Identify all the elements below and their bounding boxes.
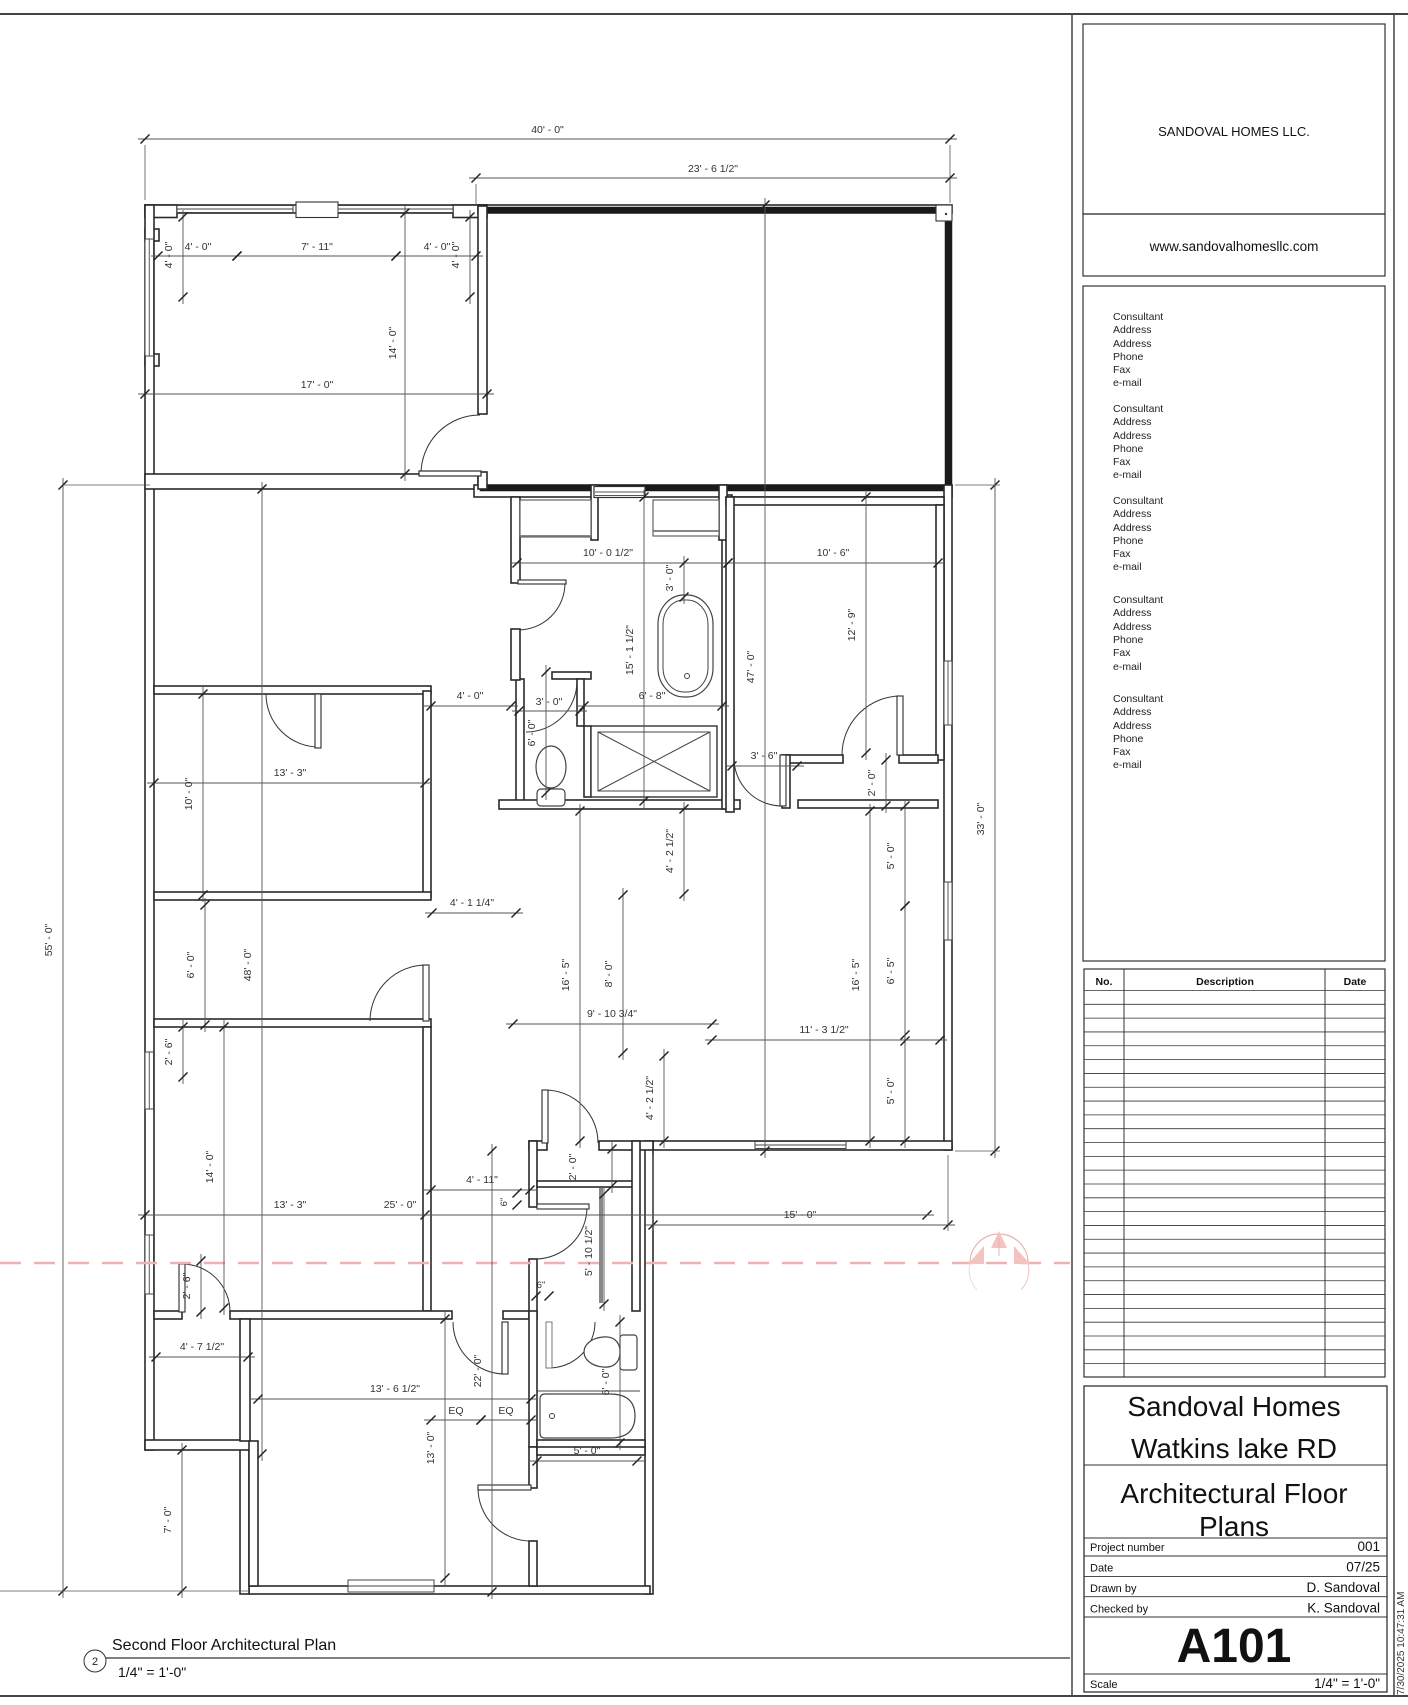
svg-text:Fax: Fax <box>1113 364 1131 376</box>
svg-text:2' - 0": 2' - 0" <box>866 769 878 796</box>
svg-text:SANDOVAL HOMES LLC.: SANDOVAL HOMES LLC. <box>1158 124 1310 139</box>
svg-text:11' - 3 1/2": 11' - 3 1/2" <box>799 1024 849 1036</box>
svg-text:Fax: Fax <box>1113 746 1131 758</box>
svg-text:Project number: Project number <box>1090 1542 1165 1554</box>
svg-text:2' - 6": 2' - 6" <box>163 1038 175 1065</box>
svg-text:13' - 6 1/2": 13' - 6 1/2" <box>370 1383 420 1395</box>
svg-text:Consultant: Consultant <box>1113 594 1163 606</box>
svg-text:4' - 0": 4' - 0" <box>424 241 451 253</box>
svg-text:23' - 6 1/2": 23' - 6 1/2" <box>688 163 738 175</box>
svg-text:Description: Description <box>1196 976 1254 988</box>
svg-text:2' - 6": 2' - 6" <box>181 1272 193 1299</box>
svg-text:Checked by: Checked by <box>1090 1604 1149 1616</box>
svg-text:Consultant: Consultant <box>1113 495 1163 507</box>
svg-text:6' - 0": 6' - 0" <box>600 1368 612 1395</box>
svg-text:4' - 0": 4' - 0" <box>163 241 175 268</box>
svg-text:Second Floor Architectural Pla: Second Floor Architectural Plan <box>112 1637 336 1654</box>
svg-text:4' - 7 1/2": 4' - 7 1/2" <box>180 1341 225 1353</box>
svg-text:14' - 0": 14' - 0" <box>204 1150 216 1183</box>
svg-text:4' - 11": 4' - 11" <box>466 1174 498 1186</box>
svg-text:14' - 0": 14' - 0" <box>387 326 399 359</box>
svg-text:Address: Address <box>1113 416 1152 428</box>
svg-text:Architectural Floor: Architectural Floor <box>1120 1478 1347 1509</box>
svg-text:e-mail: e-mail <box>1113 561 1142 573</box>
svg-text:Fax: Fax <box>1113 647 1131 659</box>
svg-text:e-mail: e-mail <box>1113 661 1142 673</box>
svg-text:Scale: Scale <box>1090 1679 1118 1691</box>
svg-text:4' - 0": 4' - 0" <box>457 690 484 702</box>
svg-text:7' - 11": 7' - 11" <box>301 241 333 253</box>
svg-text:Address: Address <box>1113 720 1152 732</box>
svg-text:Phone: Phone <box>1113 351 1144 363</box>
svg-text:Address: Address <box>1113 607 1152 619</box>
svg-text:33' - 0": 33' - 0" <box>975 802 987 835</box>
svg-text:6": 6" <box>499 1198 510 1207</box>
svg-text:1/4" = 1'-0": 1/4" = 1'-0" <box>1314 1676 1380 1691</box>
svg-text:3' - 6": 3' - 6" <box>751 750 778 762</box>
svg-text:2: 2 <box>92 1656 98 1668</box>
svg-text:3' - 0": 3' - 0" <box>664 564 676 591</box>
svg-text:Consultant: Consultant <box>1113 403 1163 415</box>
svg-text:Fax: Fax <box>1113 456 1131 468</box>
svg-text:6' - 5": 6' - 5" <box>885 957 897 984</box>
svg-text:6' - 0": 6' - 0" <box>526 719 538 746</box>
svg-text:Phone: Phone <box>1113 733 1144 745</box>
svg-text:15' - 0": 15' - 0" <box>784 1209 817 1221</box>
svg-text:Address: Address <box>1113 522 1152 534</box>
svg-text:9' - 10 3/4": 9' - 10 3/4" <box>587 1008 637 1020</box>
svg-text:4' - 0": 4' - 0" <box>185 241 212 253</box>
svg-text:1/4" = 1'-0": 1/4" = 1'-0" <box>118 1664 186 1680</box>
svg-text:Address: Address <box>1113 338 1152 350</box>
svg-text:5' - 10 1/2": 5' - 10 1/2" <box>583 1226 595 1276</box>
svg-text:7' - 0": 7' - 0" <box>162 1506 174 1533</box>
svg-text:e-mail: e-mail <box>1113 377 1142 389</box>
svg-text:47' - 0": 47' - 0" <box>745 650 757 683</box>
svg-text:Consultant: Consultant <box>1113 311 1163 323</box>
svg-text:16' - 5": 16' - 5" <box>560 958 572 991</box>
svg-text:22' - 0": 22' - 0" <box>472 1354 484 1387</box>
svg-text:EQ: EQ <box>498 1405 513 1417</box>
svg-text:25' - 0": 25' - 0" <box>384 1199 417 1211</box>
svg-text:K. Sandoval: K. Sandoval <box>1307 1601 1380 1616</box>
svg-text:Address: Address <box>1113 706 1152 718</box>
svg-text:07/25: 07/25 <box>1346 1560 1380 1575</box>
svg-text:5' - 0": 5' - 0" <box>885 842 897 869</box>
svg-text:Sandoval Homes: Sandoval Homes <box>1127 1391 1340 1422</box>
svg-text:55' - 0": 55' - 0" <box>43 923 55 956</box>
svg-text:5' - 0": 5' - 0" <box>885 1077 897 1104</box>
svg-text:13' - 0": 13' - 0" <box>425 1431 437 1464</box>
svg-text:10' - 0": 10' - 0" <box>183 777 195 810</box>
svg-text:4' - 2 1/2": 4' - 2 1/2" <box>664 829 676 874</box>
svg-text:3' - 0": 3' - 0" <box>536 696 563 708</box>
svg-text:12' - 9": 12' - 9" <box>846 608 858 641</box>
svg-text:Address: Address <box>1113 621 1152 633</box>
svg-text:Date: Date <box>1090 1563 1113 1575</box>
svg-text:8' - 0": 8' - 0" <box>603 960 615 987</box>
svg-text:13' - 3": 13' - 3" <box>274 767 307 779</box>
svg-text:13' - 3": 13' - 3" <box>274 1199 307 1211</box>
svg-text:001: 001 <box>1357 1539 1380 1554</box>
svg-text:Plans: Plans <box>1199 1511 1269 1542</box>
svg-text:2' - 0": 2' - 0" <box>567 1153 579 1180</box>
svg-text:D. Sandoval: D. Sandoval <box>1306 1580 1380 1595</box>
svg-text:Fax: Fax <box>1113 548 1131 560</box>
svg-text:www.sandovalhomesllc.com: www.sandovalhomesllc.com <box>1149 239 1319 254</box>
svg-text:6' - 0": 6' - 0" <box>185 951 197 978</box>
svg-text:7/30/2025 10:47:31 AM: 7/30/2025 10:47:31 AM <box>1396 1592 1407 1695</box>
svg-text:16' - 5": 16' - 5" <box>850 958 862 991</box>
svg-text:6' - 8": 6' - 8" <box>639 690 666 702</box>
svg-text:Address: Address <box>1113 430 1152 442</box>
svg-text:EQ: EQ <box>448 1405 463 1417</box>
svg-text:48' - 0": 48' - 0" <box>242 948 254 981</box>
svg-text:5' - 0": 5' - 0" <box>574 1445 601 1457</box>
svg-text:A101: A101 <box>1177 1620 1292 1673</box>
svg-text:Address: Address <box>1113 508 1152 520</box>
svg-text:Date: Date <box>1344 976 1367 988</box>
svg-text:15' - 1 1/2": 15' - 1 1/2" <box>624 625 636 675</box>
svg-text:6": 6" <box>537 1280 546 1291</box>
svg-text:Consultant: Consultant <box>1113 693 1163 705</box>
svg-text:No.: No. <box>1096 976 1113 988</box>
svg-text:e-mail: e-mail <box>1113 759 1142 771</box>
svg-text:e-mail: e-mail <box>1113 469 1142 481</box>
svg-text:Drawn by: Drawn by <box>1090 1583 1137 1595</box>
svg-text:Phone: Phone <box>1113 535 1144 547</box>
svg-text:4' - 1 1/4": 4' - 1 1/4" <box>450 897 495 909</box>
svg-text:Phone: Phone <box>1113 634 1144 646</box>
svg-text:10' - 6": 10' - 6" <box>817 547 850 559</box>
svg-text:17' - 0": 17' - 0" <box>301 379 334 391</box>
svg-text:Watkins lake RD: Watkins lake RD <box>1131 1433 1337 1464</box>
svg-text:40' - 0": 40' - 0" <box>531 124 564 136</box>
svg-text:4' - 0": 4' - 0" <box>450 241 462 268</box>
svg-text:4' - 2 1/2": 4' - 2 1/2" <box>644 1076 656 1121</box>
svg-text:Phone: Phone <box>1113 443 1144 455</box>
svg-text:Address: Address <box>1113 324 1152 336</box>
svg-text:10' - 0 1/2": 10' - 0 1/2" <box>583 547 633 559</box>
